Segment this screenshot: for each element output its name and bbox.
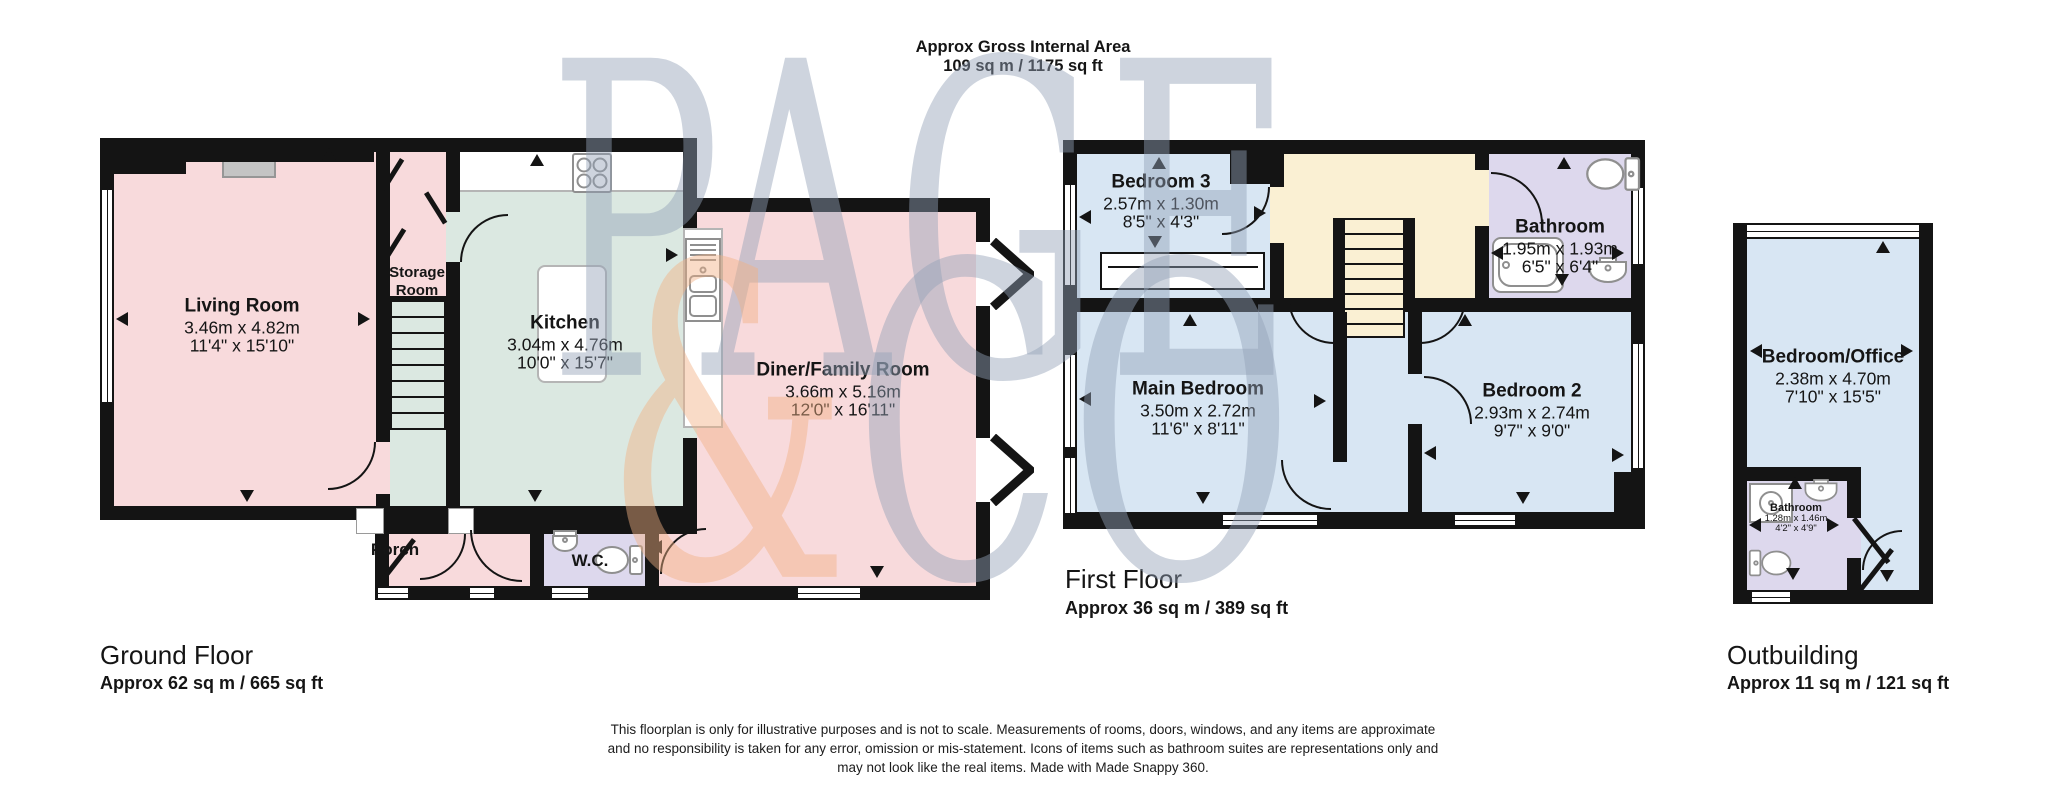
living-arrow-up-icon <box>322 148 336 160</box>
bedroom2-arrow-right-icon <box>1612 448 1624 462</box>
living-arrow-down-icon <box>240 490 254 502</box>
porch-window-1 <box>378 586 408 600</box>
living-arrow-left-icon <box>116 312 128 326</box>
bedroom2-arrow-down-icon <box>1516 492 1530 504</box>
office-arrow-left-icon <box>1750 344 1762 358</box>
stair-wall-left <box>1333 218 1343 312</box>
office-arrow-up-icon <box>1876 241 1890 253</box>
main-arrow-right-icon <box>1314 394 1326 408</box>
page-title: Approx Gross Internal Area 109 sq m / 11… <box>916 38 1131 76</box>
first-staircase <box>1343 218 1405 338</box>
inner-glazed-panel-1 <box>356 508 384 534</box>
french-door-chevron-2 <box>990 434 1034 506</box>
outbuilding-heading: Outbuilding <box>1727 640 1859 671</box>
ob-bathroom-arrow-down-icon <box>1786 568 1800 580</box>
floorplan-page: Approx Gross Internal Area 109 sq m / 11… <box>0 0 2048 796</box>
diner-arrow-up-icon <box>838 200 852 212</box>
living-room-label: Living Room 3.46m x 4.82m 11'4" x 15'10" <box>184 297 300 356</box>
main-bedroom-door-gap <box>1333 462 1347 512</box>
bedroom3-closet <box>1100 252 1265 290</box>
bedroom3-wall-chunk <box>1230 154 1280 184</box>
office-label: Bedroom/Office 2.38m x 4.70m 7'10" x 15'… <box>1762 348 1905 407</box>
ob-bathroom-arrow-left-icon <box>1749 518 1761 532</box>
bedroom3-door-gap <box>1270 187 1284 243</box>
office-window-top <box>1747 223 1919 239</box>
disclaimer-line-1: This floorplan is only for illustrative … <box>523 720 1523 739</box>
bathroom-toilet-icon <box>1582 156 1642 192</box>
hob-icon <box>572 153 612 193</box>
porch-window-2 <box>470 586 494 600</box>
closet-rail <box>1108 266 1258 268</box>
bedroom3-arrow-right-icon <box>1254 206 1266 220</box>
kitchen-arrow-down-icon <box>528 490 542 502</box>
diner-family-room-label: Diner/Family Room 3.66m x 5.16m 12'0" x … <box>756 361 929 420</box>
diner-arrow-left-icon <box>650 540 662 554</box>
bedroom2-arrow-up-icon <box>1458 314 1472 326</box>
kitchen-arrow-right-icon <box>666 248 678 262</box>
main-bedroom-window-2 <box>1063 458 1077 513</box>
hall-corridor-floor <box>390 430 446 506</box>
ground-floor-heading: Ground Floor <box>100 640 253 671</box>
main-bedroom-window-1 <box>1063 355 1077 447</box>
kitchen-sink-icon <box>685 238 721 322</box>
first-floor-area: Approx 36 sq m / 389 sq ft <box>1065 598 1288 619</box>
first-corridor-floor <box>1347 312 1408 512</box>
bedroom3-window <box>1063 185 1077 285</box>
diner-french-door-gap-2 <box>976 438 990 502</box>
disclaimer-line-2: and no responsibility is taken for any e… <box>523 739 1523 758</box>
wall-main-corridor <box>1333 312 1347 462</box>
bathroom-label: Bathroom 1.95m x 1.93m 6'5" x 6'4" <box>1502 218 1618 277</box>
first-floor-heading: First Floor <box>1065 564 1182 595</box>
bathroom-window <box>1631 188 1645 264</box>
bedroom3-arrow-left-icon <box>1079 210 1091 224</box>
outbuilding-area: Approx 11 sq m / 121 sq ft <box>1727 673 1949 694</box>
storage-door-gap <box>446 212 460 262</box>
bedroom2-arrow-left-icon <box>1424 446 1436 460</box>
living-arrow-right-icon <box>358 312 370 326</box>
ob-bathroom-arrow-up-icon <box>1788 477 1802 489</box>
bedroom2-window-bottom <box>1455 513 1515 527</box>
disclaimer-line-3: may not look like the real items. Made w… <box>523 758 1523 777</box>
bedroom2-label: Bedroom 2 2.93m x 2.74m 9'7" x 9'0" <box>1474 382 1590 441</box>
diner-arrow-down-icon <box>870 566 884 578</box>
ob-entry-arrow-down-icon <box>1880 570 1894 582</box>
bedroom3-label: Bedroom 3 2.57m x 1.30m 8'5" x 4'3" <box>1103 173 1219 232</box>
ground-floor-area: Approx 62 sq m / 665 sq ft <box>100 673 323 694</box>
ob-bathroom-arrow-right-icon <box>1827 518 1839 532</box>
stair-wall-right <box>1405 218 1415 312</box>
diner-window-bottom <box>798 586 860 600</box>
diner-french-door-gap-1 <box>976 242 990 306</box>
living-door-gap <box>376 442 390 494</box>
kitchen-label: Kitchen 3.04m x 4.76m 10'0" x 15'7" <box>507 314 623 373</box>
bedroom2-corner-chunk <box>1614 472 1645 529</box>
bathroom-door-gap <box>1475 170 1489 226</box>
bedroom2-door-gap <box>1408 374 1422 424</box>
disclaimer: This floorplan is only for illustrative … <box>523 720 1523 777</box>
living-top-wall-band <box>150 138 374 162</box>
outbuilding-bathroom-label: Bathroom 1.28m x 1.46m 4'2" x 4'9" <box>1765 503 1828 533</box>
storage-room-label: Storage Room <box>378 264 456 302</box>
main-arrow-up-icon <box>1183 314 1197 326</box>
wall-corridor-bedroom2-lower <box>1408 424 1422 512</box>
porch-label: Porch <box>371 541 419 561</box>
french-door-chevron-1 <box>990 238 1034 310</box>
living-window-left <box>100 190 114 402</box>
gross-area-heading: Approx Gross Internal Area <box>916 38 1131 57</box>
main-bedroom-label: Main Bedroom 3.50m x 2.72m 11'6" x 8'11" <box>1132 380 1264 439</box>
bedroom2-window-right <box>1631 344 1645 468</box>
wc-label: W.C. <box>572 552 609 572</box>
kitchen-arrow-up-icon <box>530 154 544 166</box>
main-arrow-down-icon <box>1196 492 1210 504</box>
outbuilding-window-bottom <box>1752 590 1790 604</box>
main-arrow-left-icon <box>1079 392 1091 406</box>
bathroom-arrow-up-icon <box>1557 157 1571 169</box>
gross-area-value: 109 sq m / 1175 sq ft <box>916 57 1131 76</box>
bedroom3-arrow-up-icon <box>1152 157 1166 169</box>
main-bedroom-window-bottom <box>1223 513 1317 527</box>
bedroom3-arrow-down-icon <box>1148 236 1162 248</box>
ground-staircase <box>390 300 446 430</box>
wc-window <box>552 586 588 600</box>
